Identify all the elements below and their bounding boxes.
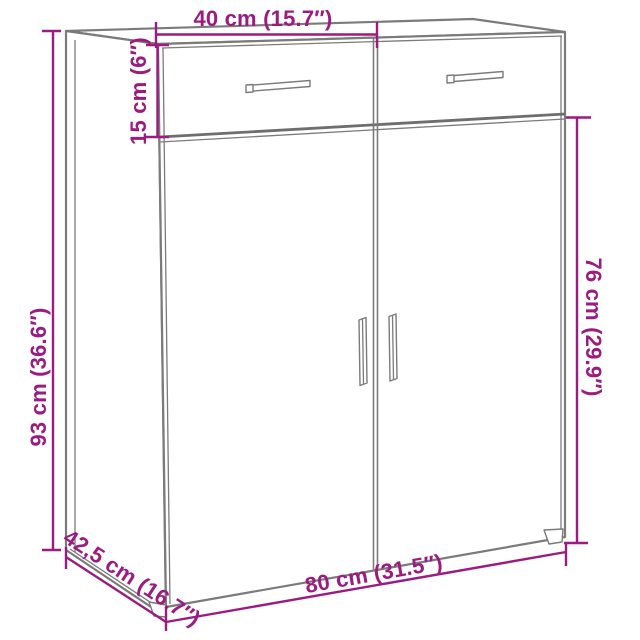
dimension-label-drawer-section-width: 40 cm (15.7″) [193,6,332,31]
right-door-handle [389,314,397,381]
diagram-canvas: 40 cm (15.7″) 15 cm (6″) 93 cm (36.6″) 7… [0,0,640,640]
left-drawer-handle-cap [246,85,253,93]
dimension-total-height: 93 cm (36.6″) [26,31,61,550]
front-right-foot [544,529,563,544]
dimension-label-door-section-height: 76 cm (29.9″) [581,257,606,396]
dimension-diagram: 40 cm (15.7″) 15 cm (6″) 93 cm (36.6″) 7… [0,0,640,640]
dimension-door-section-height: 76 cm (29.9″) [564,118,606,544]
dimension-label-total-height: 93 cm (36.6″) [26,307,51,446]
right-drawer-handle-cap [447,75,454,83]
dimension-label-drawer-height: 15 cm (6″) [126,37,151,145]
left-door-handle [359,318,367,386]
